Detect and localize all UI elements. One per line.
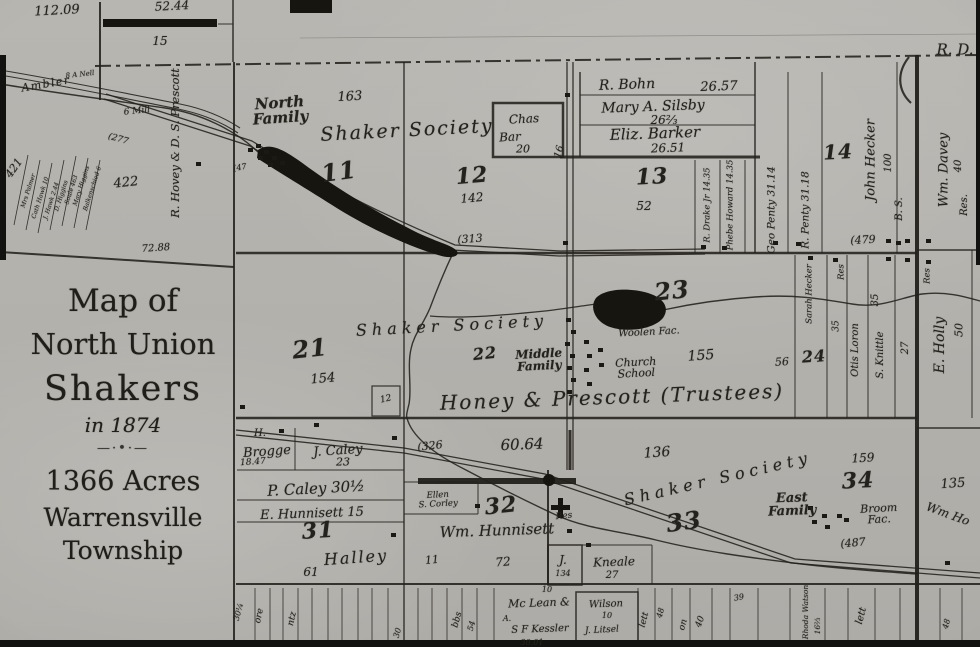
photo-edge-left bbox=[0, 55, 6, 260]
title-line-north-union: North Union bbox=[14, 327, 232, 361]
title-line-in-1874: in 1874 bbox=[14, 413, 232, 437]
title-ornament: —·•·— bbox=[14, 441, 232, 456]
map-photo: Map of North Union Shakers in 1874 —·•·—… bbox=[0, 0, 980, 647]
photo-edge-right bbox=[976, 0, 980, 265]
title-line-shakers: Shakers bbox=[14, 369, 232, 409]
photo-edge-bottom bbox=[0, 640, 980, 647]
title-line-map-of: Map of bbox=[14, 283, 232, 319]
map-title-block: Map of North Union Shakers in 1874 —·•·—… bbox=[14, 283, 232, 565]
title-line-township: Township bbox=[14, 536, 232, 565]
title-line-acres: 1366 Acres bbox=[14, 466, 232, 497]
title-line-warrensville: Warrensville bbox=[14, 503, 232, 532]
